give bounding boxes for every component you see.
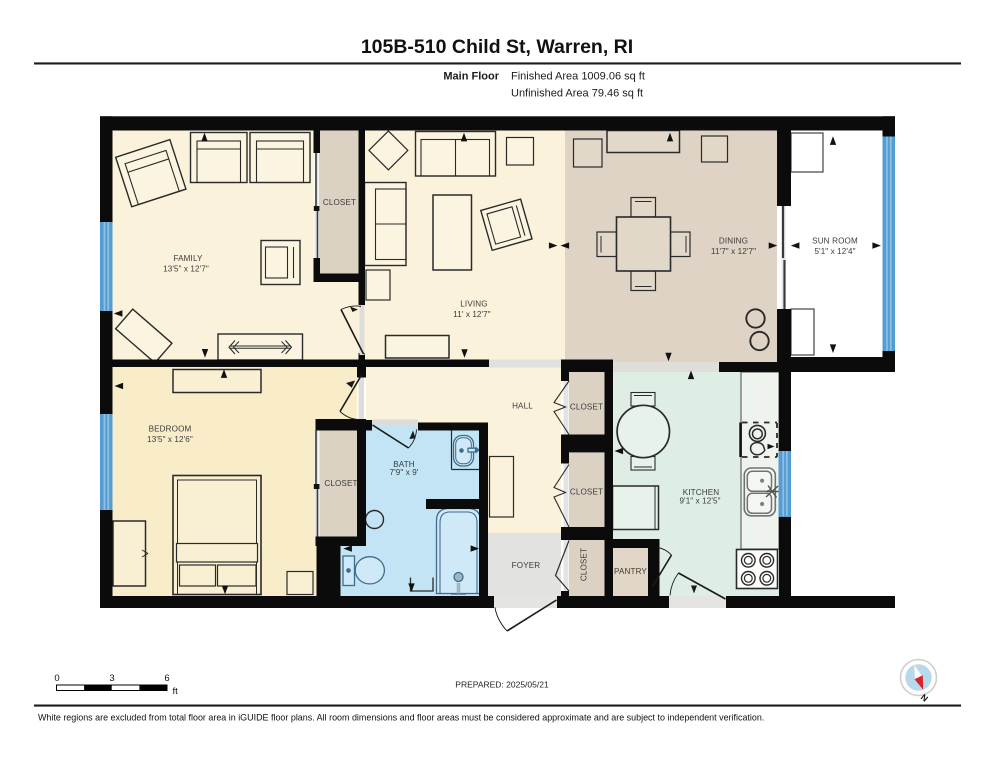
svg-text:SUN ROOM: SUN ROOM bbox=[812, 237, 858, 246]
svg-text:6: 6 bbox=[164, 673, 169, 684]
svg-text:ft: ft bbox=[173, 686, 179, 697]
svg-text:PANTRY: PANTRY bbox=[614, 567, 647, 576]
svg-text:0: 0 bbox=[54, 673, 59, 684]
svg-text:FAMILY: FAMILY bbox=[173, 254, 203, 263]
svg-text:105B-510 Child St, Warren, RI: 105B-510 Child St, Warren, RI bbox=[361, 36, 633, 58]
svg-text:CLOSET: CLOSET bbox=[323, 198, 356, 207]
svg-text:PREPARED: 2025/05/21: PREPARED: 2025/05/21 bbox=[455, 680, 549, 690]
svg-text:CLOSET: CLOSET bbox=[570, 403, 603, 412]
svg-text:Finished Area 1009.06 sq ft: Finished Area 1009.06 sq ft bbox=[511, 71, 645, 83]
svg-text:FOYER: FOYER bbox=[512, 561, 541, 570]
svg-text:3: 3 bbox=[109, 673, 114, 684]
svg-text:BEDROOM: BEDROOM bbox=[149, 425, 192, 434]
svg-text:CLOSET: CLOSET bbox=[580, 548, 589, 581]
svg-text:5'1" x 12'4": 5'1" x 12'4" bbox=[814, 247, 855, 256]
svg-text:White regions are excluded fro: White regions are excluded from total fl… bbox=[38, 713, 764, 723]
svg-text:CLOSET: CLOSET bbox=[570, 488, 603, 497]
svg-text:11'7" x 12'7": 11'7" x 12'7" bbox=[711, 247, 756, 256]
svg-text:Unfinished Area 79.46 sq ft: Unfinished Area 79.46 sq ft bbox=[511, 88, 643, 100]
svg-text:9'1" x 12'5": 9'1" x 12'5" bbox=[679, 497, 720, 506]
svg-text:7'9" x 9': 7'9" x 9' bbox=[390, 468, 419, 477]
svg-text:LIVING: LIVING bbox=[460, 300, 487, 309]
svg-text:HALL: HALL bbox=[512, 402, 533, 411]
svg-text:CLOSET: CLOSET bbox=[324, 479, 357, 488]
svg-text:13'5" x 12'7": 13'5" x 12'7" bbox=[163, 265, 209, 274]
svg-text:Main Floor: Main Floor bbox=[443, 71, 499, 83]
svg-text:DINING: DINING bbox=[719, 236, 748, 245]
svg-text:13'5" x 12'6": 13'5" x 12'6" bbox=[147, 435, 193, 444]
svg-text:11' x 12'7": 11' x 12'7" bbox=[453, 310, 491, 319]
